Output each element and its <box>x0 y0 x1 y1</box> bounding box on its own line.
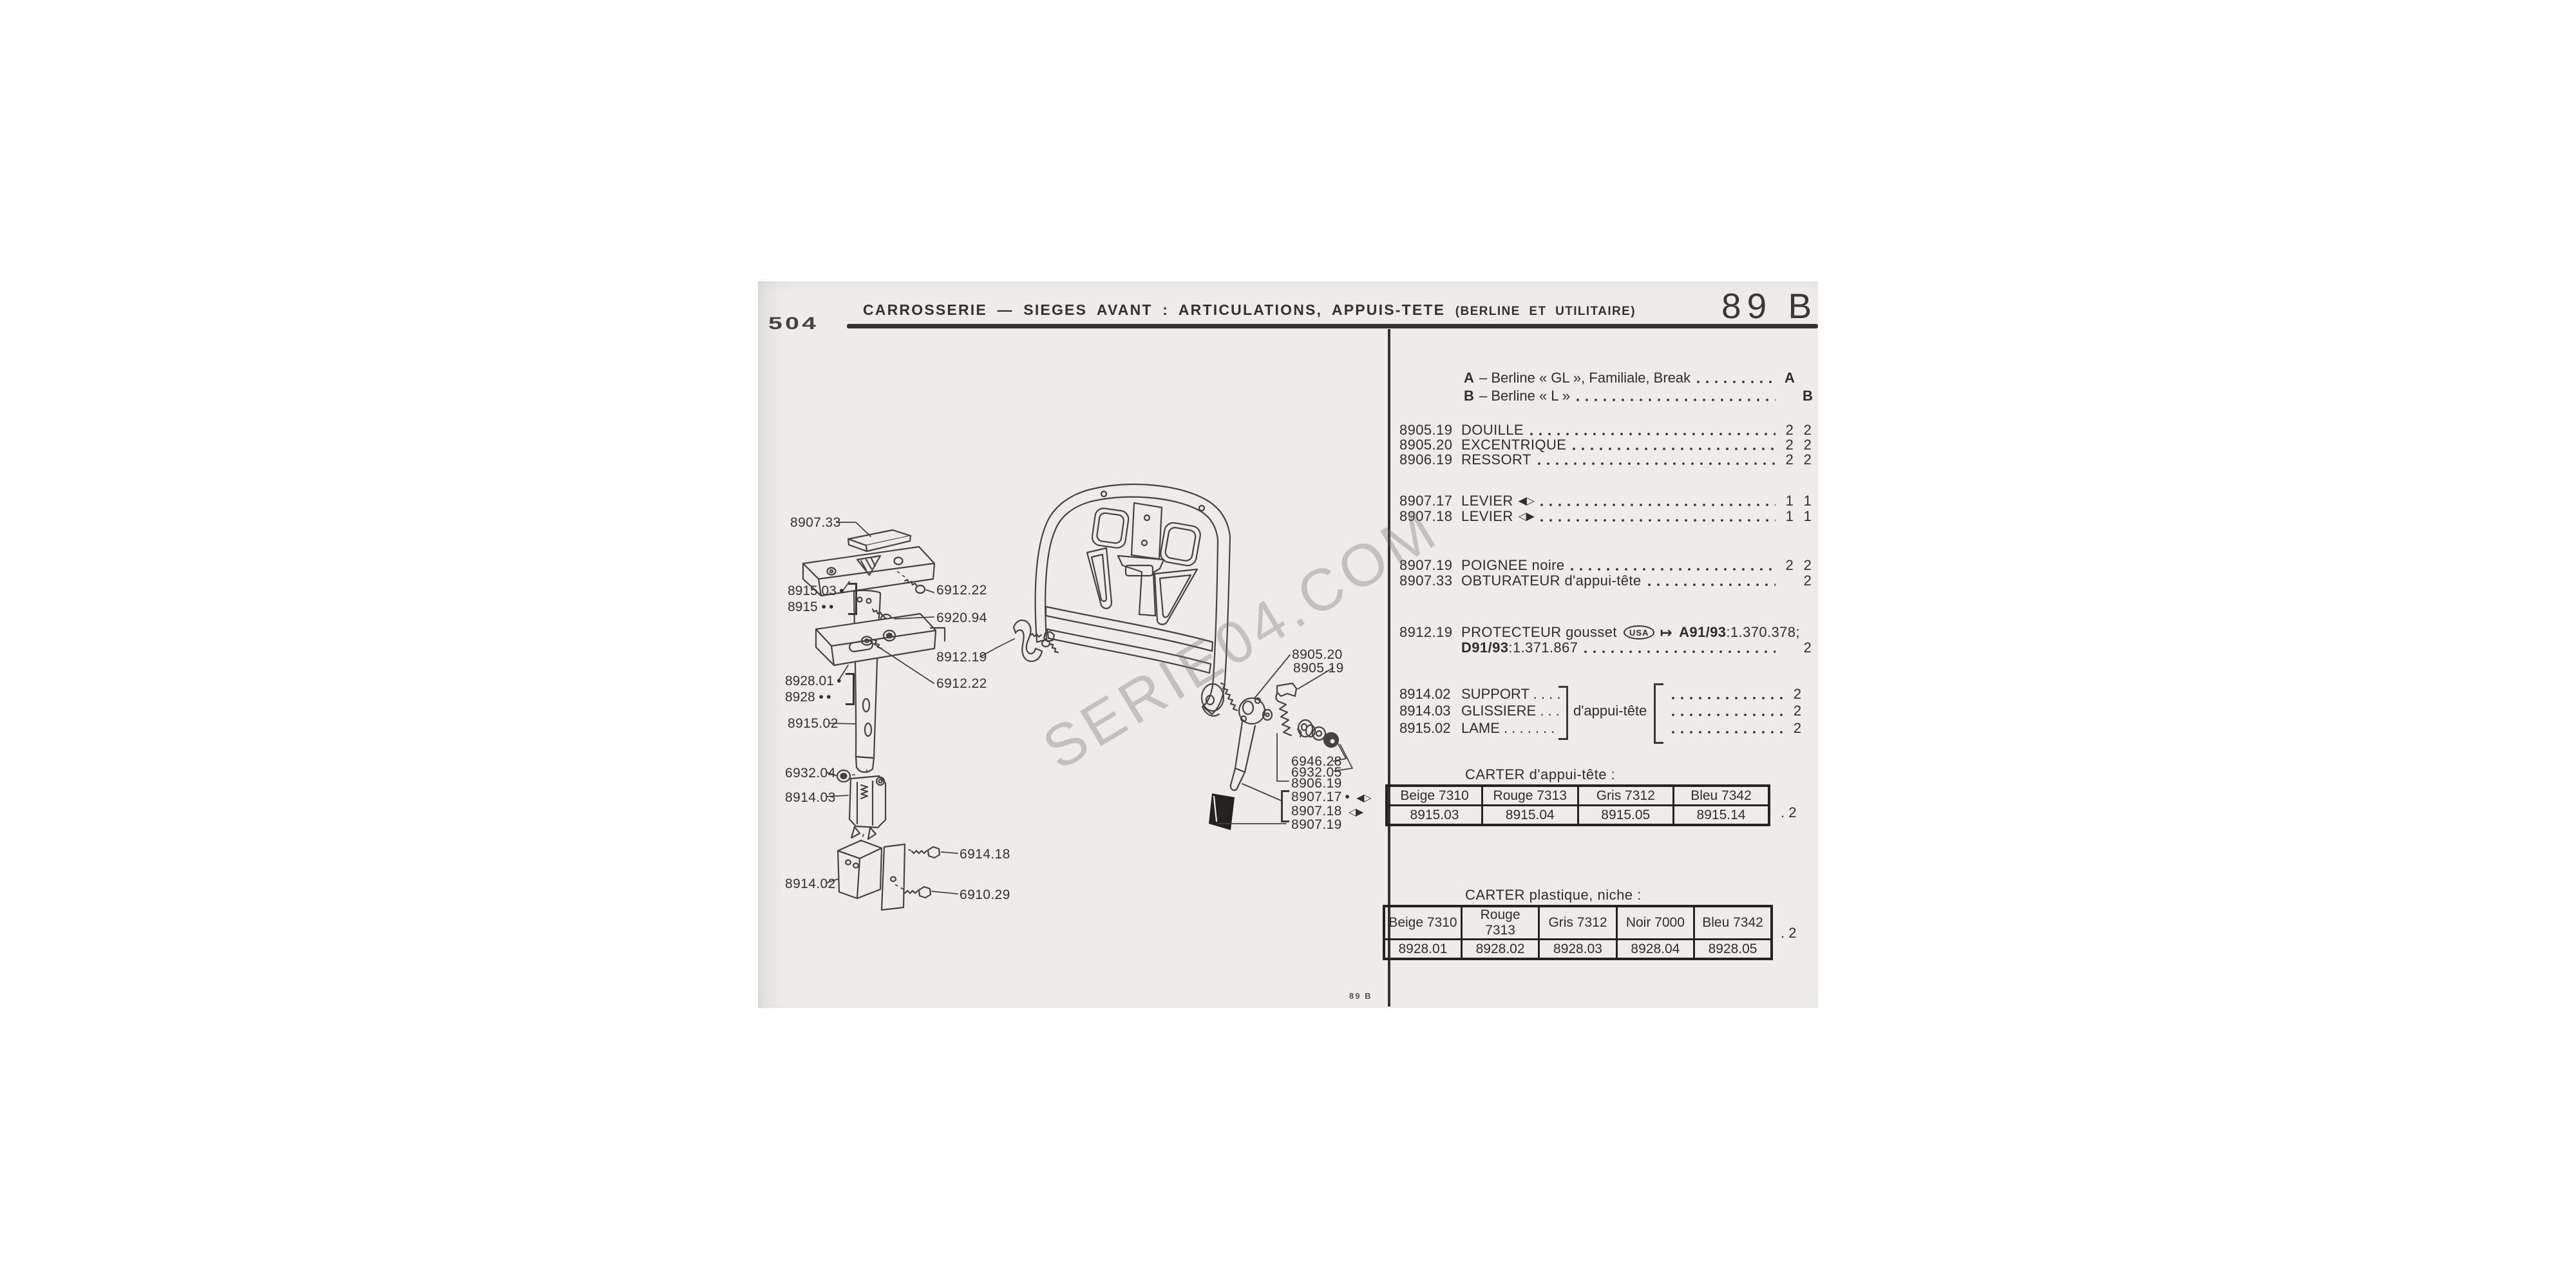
header-cell: Rouge 7313 <box>1482 786 1578 806</box>
legend-row: A – Berline « GL », Familiale, Break A <box>1464 370 1817 386</box>
part-label: SUPPORT . . . . <box>1461 686 1560 703</box>
callout-6912-22a: 6912.22 <box>936 583 987 598</box>
bracket-icon <box>1281 790 1289 822</box>
callout-8915-02: 8915.02 <box>788 716 838 732</box>
lever-direction-icon: ◁▶ <box>1519 510 1534 523</box>
qty-b: 2 <box>1799 639 1817 656</box>
part-row-protecteur: 8912.19 PROTECTEUR gousset USA ↦ A91/93 … <box>1399 624 1817 641</box>
dot-leader <box>1569 567 1776 572</box>
appui-tete-group: 8914.02 SUPPORT . . . . 8914.03 GLISSIER… <box>1399 686 1817 741</box>
page-title-paren: (BERLINE ET UTILITAIRE) <box>1455 305 1636 318</box>
support-sketch <box>838 840 905 910</box>
bolt-6914-sketch <box>912 847 940 858</box>
callout-6932-04: 6932.04 <box>785 766 836 781</box>
part-ref: 8907.18 <box>1399 508 1461 525</box>
part-label: PROTECTEUR gousset <box>1461 624 1617 641</box>
ref-cell: 8928.04 <box>1616 940 1694 960</box>
table-qty: . 2 <box>1781 925 1796 942</box>
part-row: 8907.17 LEVIER ◀▷ 1 1 <box>1399 493 1817 509</box>
group-row: 8915.02 LAME . . . . . . . <box>1399 720 1560 737</box>
dot-leader <box>1696 379 1776 384</box>
table-header-row: Beige 7310 Rouge 7313 Gris 7312 Noir 700… <box>1384 906 1772 940</box>
applicability-number: :1.371.867 <box>1508 639 1578 656</box>
part-ref: 8907.33 <box>1399 573 1461 589</box>
callout-8907-33: 8907.33 <box>790 515 841 531</box>
catalog-page: 504 CARROSSERIE — SIEGES AVANT : ARTICUL… <box>758 281 1818 1008</box>
lever-direction-icon: ◀▷ <box>1356 793 1371 804</box>
part-ref: 8914.03 <box>1399 703 1461 719</box>
table-title: CARTER d'appui-tête : <box>1465 766 1615 783</box>
callout-8928-01: 8928.01 • <box>785 673 841 689</box>
table-qty: . 2 <box>1781 804 1796 821</box>
page-code: 89 B <box>1721 285 1817 327</box>
dot-leader <box>1539 502 1776 507</box>
mapsto-arrow-icon: ↦ <box>1660 624 1672 641</box>
legend-code: A <box>1464 370 1479 386</box>
nut-6932-sketch <box>837 770 850 782</box>
dot-leader <box>1539 518 1776 523</box>
lever-direction-icon: ◁▶ <box>1349 807 1363 818</box>
group-row: 8914.02 SUPPORT . . . . <box>1399 686 1560 703</box>
group-qty-row: 2 <box>1665 703 1806 719</box>
dot-leader <box>1671 696 1784 701</box>
header-cell: Rouge 7313 <box>1461 906 1539 940</box>
callout-8914-03: 8914.03 <box>785 790 836 806</box>
table-value-row: 8928.01 8928.02 8928.03 8928.04 8928.05 <box>1384 940 1772 960</box>
qty-b: 2 <box>1799 557 1817 574</box>
header-cell: Noir 7000 <box>1616 906 1694 940</box>
header-cell: Gris 7312 <box>1539 906 1616 940</box>
group-qty-row: 2 <box>1665 687 1806 702</box>
part-ref: 8906.19 <box>1399 451 1461 468</box>
part-label: POIGNEE noire <box>1461 557 1564 574</box>
callout-6914-18: 6914.18 <box>960 847 1010 862</box>
dot-leader <box>1537 461 1776 466</box>
qty: 2 <box>1789 686 1806 703</box>
callout-8915-03: 8915.03 • <box>788 583 844 599</box>
legend-value: B <box>1799 388 1817 404</box>
part-row: 8907.18 LEVIER ◁▶ 1 1 <box>1399 508 1817 525</box>
qty-b: 2 <box>1799 573 1817 589</box>
seatback-frame-sketch <box>1030 484 1237 716</box>
part-label: LEVIER <box>1461 508 1513 525</box>
table-value-row: 8915.03 8915.04 8915.05 8915.14 <box>1387 806 1769 826</box>
ref-cell: 8915.04 <box>1482 806 1578 826</box>
usa-badge-icon: USA <box>1624 625 1654 639</box>
legend-code: B <box>1464 388 1479 404</box>
ref-cell: 8915.03 <box>1387 806 1482 826</box>
part-label: RESSORT <box>1461 451 1531 468</box>
screenshot-root: { "page": { "model_badge": "504", "page_… <box>0 0 2576 1288</box>
table-header-row: Beige 7310 Rouge 7313 Gris 7312 Bleu 734… <box>1387 786 1769 806</box>
part-ref: 8912.19 <box>1399 624 1461 641</box>
legend-label: – Berline « L » <box>1479 388 1570 404</box>
qty: 2 <box>1789 703 1806 719</box>
table-title: CARTER plastique, niche : <box>1465 887 1642 904</box>
callout-8928: 8928 • • <box>785 689 841 705</box>
dot-leader <box>1575 397 1776 402</box>
part-ref: 8907.19 <box>1399 557 1461 574</box>
dot-leader <box>1647 582 1776 587</box>
dot-leader <box>1671 712 1784 717</box>
dot-leader <box>1529 431 1776 437</box>
dot-leader <box>1583 649 1776 654</box>
callout-8907-17: 8907.17 •◀▷ <box>1291 790 1371 805</box>
part-label: LAME . . . . . . . <box>1461 720 1555 737</box>
callout-6910-29: 6910.29 <box>960 887 1010 903</box>
ref-cell: 8928.03 <box>1539 940 1616 960</box>
dot-leader <box>1571 446 1776 451</box>
color-table-carter: Beige 7310 Rouge 7313 Gris 7312 Bleu 734… <box>1385 784 1770 826</box>
obturateur-sketch <box>848 530 911 551</box>
legend-row: B – Berline « L » B <box>1464 388 1817 404</box>
callout-6920-94: 6920.94 <box>936 611 987 626</box>
callout-group-8928: 8928.01 • 8928 • • <box>785 673 855 705</box>
glissiere-sketch <box>849 776 885 839</box>
bracket-close-icon <box>1558 686 1568 740</box>
exploded-diagram <box>758 281 1388 1008</box>
part-row: 8907.33 OBTURATEUR d'appui-tête 2 <box>1399 573 1817 589</box>
ref-cell: 8928.05 <box>1694 940 1772 960</box>
applicability-code: A91/93 <box>1679 624 1726 641</box>
part-label: OBTURATEUR d'appui-tête <box>1461 573 1642 589</box>
callout-8907-19: 8907.19 <box>1291 817 1342 833</box>
bolt-6910-sketch <box>905 887 931 898</box>
part-label: GLISSIERE . . . <box>1461 703 1560 719</box>
dot-leader <box>1671 730 1784 735</box>
carter-niche-sketch <box>816 614 945 665</box>
group-shared-label: d'appui-tête <box>1573 703 1647 719</box>
part-row: 8906.19 RESSORT 2 2 <box>1399 451 1817 468</box>
qty-b: 1 <box>1799 508 1817 525</box>
part-row-protecteur-cont: D91/93 :1.371.867 2 <box>1399 639 1817 656</box>
callout-8912-19: 8912.19 <box>936 650 987 665</box>
group-row: 8914.03 GLISSIERE . . . <box>1399 703 1560 719</box>
qty-a: 2 <box>1781 557 1799 574</box>
qty-a: 1 <box>1781 508 1799 525</box>
ref-cell: 8928.02 <box>1461 940 1539 960</box>
lame-sketch <box>854 591 880 772</box>
color-table-niche: Beige 7310 Rouge 7313 Gris 7312 Noir 700… <box>1383 905 1773 960</box>
header-cell: Gris 7312 <box>1578 786 1674 806</box>
callout-8915: 8915 • • <box>788 599 844 615</box>
lever-direction-icon: ◀▷ <box>1519 495 1534 507</box>
bracket-icon <box>848 583 857 615</box>
qty-b: 1 <box>1799 493 1817 509</box>
header-cell: Bleu 7342 <box>1694 906 1772 940</box>
qty-a: 1 <box>1781 493 1799 509</box>
part-ref: 8907.17 <box>1399 493 1461 509</box>
ref-cell: 8928.01 <box>1384 940 1461 960</box>
part-ref: 8914.02 <box>1399 686 1461 703</box>
ref-cell: 8915.05 <box>1578 806 1674 826</box>
bracket-open-icon <box>1654 683 1663 744</box>
bracket-icon <box>846 673 855 705</box>
callout-6912-22b: 6912.22 <box>936 676 987 692</box>
qty: 2 <box>1789 720 1806 737</box>
ref-cell: 8915.14 <box>1674 806 1770 826</box>
header-cell: Bleu 7342 <box>1674 786 1770 806</box>
part-ref: 8915.02 <box>1399 720 1461 737</box>
qty-b: 2 <box>1799 451 1817 468</box>
applicability-number: :1.370.378; <box>1726 624 1800 641</box>
legend-value: A <box>1781 370 1799 386</box>
legend-label: – Berline « GL », Familiale, Break <box>1479 370 1690 386</box>
header-cell: Beige 7310 <box>1384 906 1461 940</box>
header-cell: Beige 7310 <box>1387 786 1482 806</box>
applicability-code: D91/93 <box>1461 639 1508 656</box>
part-label: LEVIER <box>1461 493 1513 509</box>
qty-a: 2 <box>1781 451 1799 468</box>
group-qty-row: 2 <box>1665 721 1806 736</box>
callout-group-8915: 8915.03 • 8915 • • <box>788 583 857 615</box>
part-row: 8907.19 POIGNEE noire 2 2 <box>1399 557 1817 574</box>
callout-8914-02: 8914.02 <box>785 876 836 892</box>
callout-8905-19: 8905.19 <box>1293 661 1344 676</box>
